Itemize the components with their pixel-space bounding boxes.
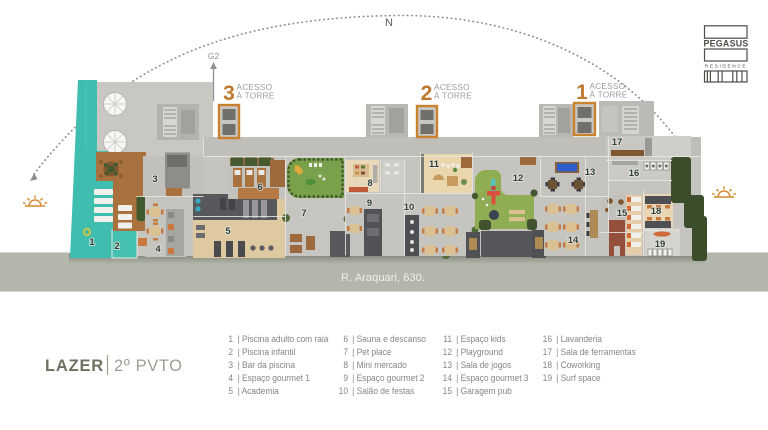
svg-text:11: 11 bbox=[443, 334, 452, 344]
svg-text:| Sala de ferramentas: | Sala de ferramentas bbox=[556, 347, 636, 357]
svg-text:| Academia: | Academia bbox=[238, 386, 279, 396]
svg-text:| Salão de festas: | Salão de festas bbox=[352, 386, 415, 396]
svg-text:2º PVTO: 2º PVTO bbox=[114, 357, 183, 375]
svg-text:9: 9 bbox=[367, 198, 372, 209]
svg-text:1: 1 bbox=[89, 237, 95, 248]
svg-text:3: 3 bbox=[228, 360, 233, 370]
svg-text:11: 11 bbox=[429, 159, 440, 170]
svg-text:13: 13 bbox=[443, 360, 452, 370]
svg-text:15: 15 bbox=[443, 386, 452, 396]
svg-text:19: 19 bbox=[543, 373, 552, 383]
svg-text:| Espaço gourmet 2: | Espaço gourmet 2 bbox=[352, 373, 424, 383]
svg-text:À TORRE: À TORRE bbox=[434, 91, 472, 101]
svg-text:10: 10 bbox=[339, 386, 348, 396]
svg-text:8: 8 bbox=[343, 360, 348, 370]
svg-text:| Lavanderia: | Lavanderia bbox=[556, 334, 602, 344]
svg-text:PEGASUS: PEGASUS bbox=[703, 39, 748, 49]
svg-text:RESIDENCE: RESIDENCE bbox=[705, 64, 747, 70]
svg-text:15: 15 bbox=[617, 208, 628, 219]
svg-text:| Piscina infantil: | Piscina infantil bbox=[238, 347, 296, 357]
svg-text:| Sauna e descanso: | Sauna e descanso bbox=[352, 334, 426, 344]
svg-text:LAZER: LAZER bbox=[45, 357, 104, 375]
svg-text:9: 9 bbox=[343, 373, 348, 383]
svg-text:5: 5 bbox=[228, 386, 233, 396]
svg-text:17: 17 bbox=[543, 347, 552, 357]
svg-text:N: N bbox=[385, 17, 393, 29]
svg-text:| Surf space: | Surf space bbox=[556, 373, 601, 383]
svg-text:7: 7 bbox=[343, 347, 348, 357]
svg-text:2: 2 bbox=[421, 82, 433, 105]
svg-text:| Mini mercado: | Mini mercado bbox=[352, 360, 407, 370]
svg-text:| Coworking: | Coworking bbox=[556, 360, 600, 370]
svg-text:À TORRE: À TORRE bbox=[590, 90, 628, 100]
svg-text:3: 3 bbox=[223, 82, 235, 105]
svg-text:| Sala de jogos: | Sala de jogos bbox=[456, 360, 512, 370]
svg-text:8: 8 bbox=[367, 178, 372, 189]
svg-text:14: 14 bbox=[568, 235, 579, 246]
svg-text:À TORRE: À TORRE bbox=[237, 91, 275, 101]
svg-text:7: 7 bbox=[301, 208, 306, 219]
svg-text:| Piscina adulto com raia: | Piscina adulto com raia bbox=[238, 334, 329, 344]
svg-text:R. Araquari, 630.: R. Araquari, 630. bbox=[341, 272, 425, 284]
svg-text:18: 18 bbox=[543, 360, 552, 370]
svg-text:| Espaço gourmet 1: | Espaço gourmet 1 bbox=[238, 373, 310, 383]
svg-text:19: 19 bbox=[655, 239, 666, 250]
svg-text:3: 3 bbox=[152, 174, 157, 185]
svg-text:| Espaço kids: | Espaço kids bbox=[456, 334, 506, 344]
svg-text:4: 4 bbox=[228, 373, 233, 383]
svg-text:1: 1 bbox=[576, 81, 588, 104]
svg-text:| Espaço gourmet 3: | Espaço gourmet 3 bbox=[456, 373, 528, 383]
svg-text:| Garagem pub: | Garagem pub bbox=[456, 386, 512, 396]
svg-text:G2: G2 bbox=[208, 51, 220, 61]
svg-text:| Pet place: | Pet place bbox=[352, 347, 391, 357]
svg-text:12: 12 bbox=[513, 173, 524, 184]
svg-text:5: 5 bbox=[225, 226, 231, 237]
svg-text:6: 6 bbox=[343, 334, 348, 344]
svg-text:14: 14 bbox=[443, 373, 452, 383]
svg-text:13: 13 bbox=[585, 167, 596, 178]
svg-text:1: 1 bbox=[228, 334, 233, 344]
svg-text:16: 16 bbox=[543, 334, 552, 344]
svg-text:2: 2 bbox=[228, 347, 233, 357]
svg-text:4: 4 bbox=[155, 244, 161, 255]
svg-text:17: 17 bbox=[612, 137, 623, 148]
svg-text:18: 18 bbox=[651, 206, 662, 217]
svg-text:16: 16 bbox=[629, 168, 640, 179]
svg-text:| Playground: | Playground bbox=[456, 347, 503, 357]
svg-text:12: 12 bbox=[443, 347, 452, 357]
svg-text:6: 6 bbox=[257, 182, 262, 193]
svg-text:2: 2 bbox=[114, 241, 119, 252]
svg-text:| Bar da piscina: | Bar da piscina bbox=[238, 360, 296, 370]
svg-text:10: 10 bbox=[404, 202, 415, 213]
